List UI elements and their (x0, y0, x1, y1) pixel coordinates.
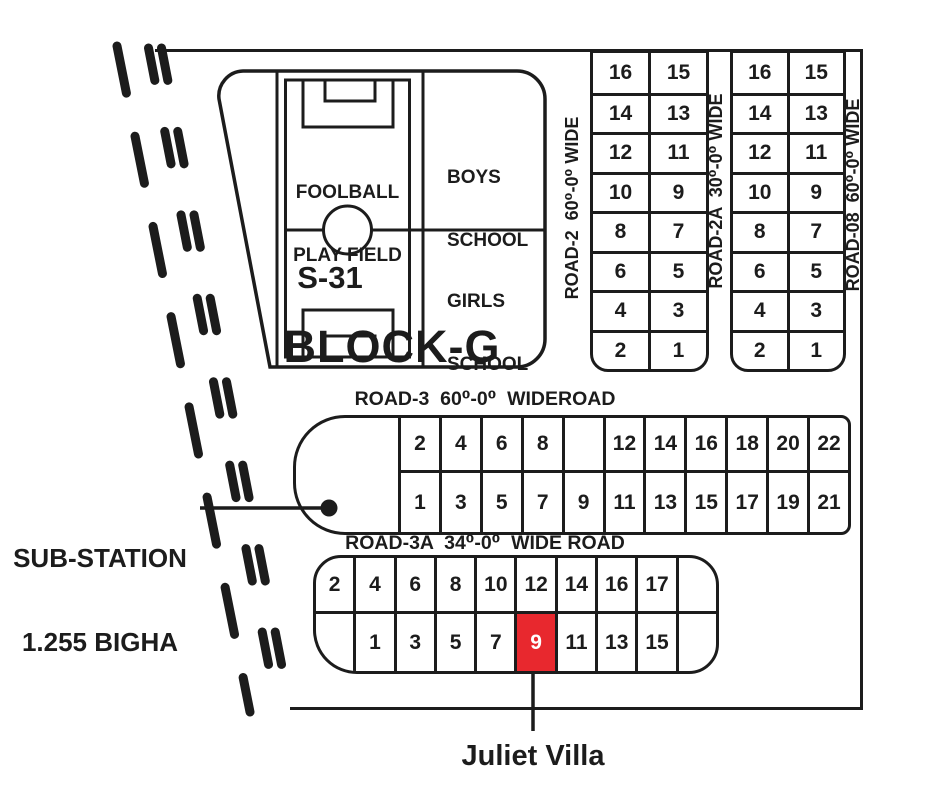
plot-2: 2 (733, 330, 787, 370)
plot-3: 3 (787, 290, 844, 330)
plot-row: 21 (593, 330, 706, 370)
plot-row: 1211 (733, 132, 843, 172)
plot-12: 12 (733, 132, 787, 172)
plot-8: 8 (434, 558, 474, 611)
plot-5: 5 (434, 611, 474, 671)
east-plot-block-a: 16151413121110987654321 (590, 50, 709, 372)
plot-grid-road3: 246812141618202213579111315171921 (398, 418, 848, 532)
plot-8: 8 (521, 418, 562, 470)
plot-row: 24681012141617 (316, 558, 716, 611)
plot-7: 7 (474, 611, 514, 671)
plot-row: 87 (733, 211, 843, 251)
substation-label-line2: 1.255 BIGHA (0, 628, 200, 656)
plot-3: 3 (648, 290, 706, 330)
plot-18: 18 (725, 418, 766, 470)
plot-19: 19 (766, 470, 807, 532)
plot-4: 4 (733, 290, 787, 330)
plot-13: 13 (787, 93, 844, 133)
plot-15: 15 (635, 611, 675, 671)
plot-9: 9 (562, 470, 603, 532)
plot-row: 109 (593, 172, 706, 212)
plot-5: 5 (648, 251, 706, 291)
plot-1: 1 (648, 330, 706, 370)
plot-row: 13579111315171921 (398, 470, 848, 532)
plot-grid-east-b: 16151413121110987654321 (733, 53, 843, 369)
plot-grid-east-a: 16151413121110987654321 (593, 53, 706, 369)
plot-5: 5 (787, 251, 844, 291)
plot-15: 15 (648, 53, 706, 93)
plot-row: 1615 (733, 53, 843, 93)
plot-11: 11 (603, 470, 644, 532)
plot-7: 7 (787, 211, 844, 251)
plot-5: 5 (480, 470, 521, 532)
plot-empty (562, 418, 603, 470)
plot-1: 1 (353, 611, 393, 671)
plot-15: 15 (787, 53, 844, 93)
football-field-label-line1: FOOLBALL (277, 182, 418, 203)
plot-9: 9 (648, 172, 706, 212)
plot-8: 8 (593, 211, 648, 251)
plot-row: 87 (593, 211, 706, 251)
plot-16: 16 (593, 53, 648, 93)
plot-12: 12 (593, 132, 648, 172)
plot-row: 1413 (593, 93, 706, 133)
plot-13: 13 (648, 93, 706, 133)
block-g-title: BLOCK-G (267, 321, 517, 373)
plot-16: 16 (733, 53, 787, 93)
plot-row: 1211 (593, 132, 706, 172)
plot-1: 1 (787, 330, 844, 370)
plot-14: 14 (643, 418, 684, 470)
plot-row: 21 (733, 330, 843, 370)
plot-17: 17 (635, 558, 675, 611)
plot-row: 13579111315 (316, 611, 716, 671)
plot-6: 6 (480, 418, 521, 470)
plot-10: 10 (593, 172, 648, 212)
substation-label: SUB-STATION 1.255 BIGHA (0, 488, 200, 712)
plot-row: 1413 (733, 93, 843, 133)
penalty-box-top (303, 80, 393, 127)
plot-12: 12 (514, 558, 554, 611)
plot-15: 15 (684, 470, 725, 532)
plot-row: 2468121416182022 (398, 418, 848, 470)
plot-11: 11 (648, 132, 706, 172)
road-2a-label: ROAD-2A 30⁰-0⁰ WIDE (705, 86, 727, 296)
road-2-label: ROAD-2 60⁰-0⁰ WIDE (561, 103, 583, 313)
plot-2: 2 (593, 330, 648, 370)
plot-16: 16 (595, 558, 635, 611)
plot-4: 4 (353, 558, 393, 611)
plot-17: 17 (725, 470, 766, 532)
plot-14: 14 (593, 93, 648, 133)
plot-20: 20 (766, 418, 807, 470)
plot-13: 13 (643, 470, 684, 532)
plot-empty (676, 611, 716, 671)
plot-11: 11 (787, 132, 844, 172)
plot-4: 4 (593, 290, 648, 330)
plot-14: 14 (733, 93, 787, 133)
plot-7: 7 (521, 470, 562, 532)
boys-school-line2: SCHOOL (447, 230, 528, 251)
villa-callout-label: Juliet Villa (408, 740, 658, 773)
plot-row: 43 (733, 290, 843, 330)
east-plot-block-b: 16151413121110987654321 (730, 50, 846, 372)
plot-13: 13 (595, 611, 635, 671)
plot-row: 43 (593, 290, 706, 330)
plot-s31-label: S-31 (270, 260, 390, 296)
plot-empty (676, 558, 716, 611)
plot-row: 1615 (593, 53, 706, 93)
plot-6: 6 (394, 558, 434, 611)
plot-22: 22 (807, 418, 848, 470)
boys-school-line1: BOYS (447, 167, 528, 188)
plot-14: 14 (555, 558, 595, 611)
plot-row: 109 (733, 172, 843, 212)
plot-7: 7 (648, 211, 706, 251)
plot-4: 4 (439, 418, 480, 470)
plot-row: 65 (733, 251, 843, 291)
road-08-label: ROAD-08 60⁰-0⁰ WIDE (842, 90, 864, 300)
girls-school-line1: GIRLS (447, 291, 528, 312)
road-3-label: ROAD-3 60⁰-0⁰ WIDEROAD (330, 387, 640, 411)
plot-3: 3 (439, 470, 480, 532)
plot-10: 10 (474, 558, 514, 611)
road-3a-label: ROAD-3A 34⁰-0⁰ WIDE ROAD (330, 531, 640, 555)
road3a-plot-block: 2468101214161713579111315 (313, 555, 719, 674)
plot-11: 11 (555, 611, 595, 671)
plot-8: 8 (733, 211, 787, 251)
plot-3: 3 (394, 611, 434, 671)
plot-21: 21 (807, 470, 848, 532)
plot-6: 6 (733, 251, 787, 291)
plot-empty (316, 611, 353, 671)
plot-2: 2 (316, 558, 353, 611)
substation-label-line1: SUB-STATION (0, 544, 200, 572)
goal-box-top (325, 80, 375, 101)
site-plan-map: FOOLBALL PLAY FIELD BOYS SCHOOL GIRLS SC… (0, 0, 929, 800)
plot-row: 65 (593, 251, 706, 291)
plot-9: 9 (514, 611, 554, 671)
plot-16: 16 (684, 418, 725, 470)
plot-1: 1 (398, 470, 439, 532)
plot-2: 2 (398, 418, 439, 470)
road3-plot-block: 246812141618202213579111315171921 (293, 415, 851, 535)
plot-12: 12 (603, 418, 644, 470)
plot-9: 9 (787, 172, 844, 212)
plot-10: 10 (733, 172, 787, 212)
plot-6: 6 (593, 251, 648, 291)
plot-grid-road3a: 2468101214161713579111315 (316, 558, 716, 671)
